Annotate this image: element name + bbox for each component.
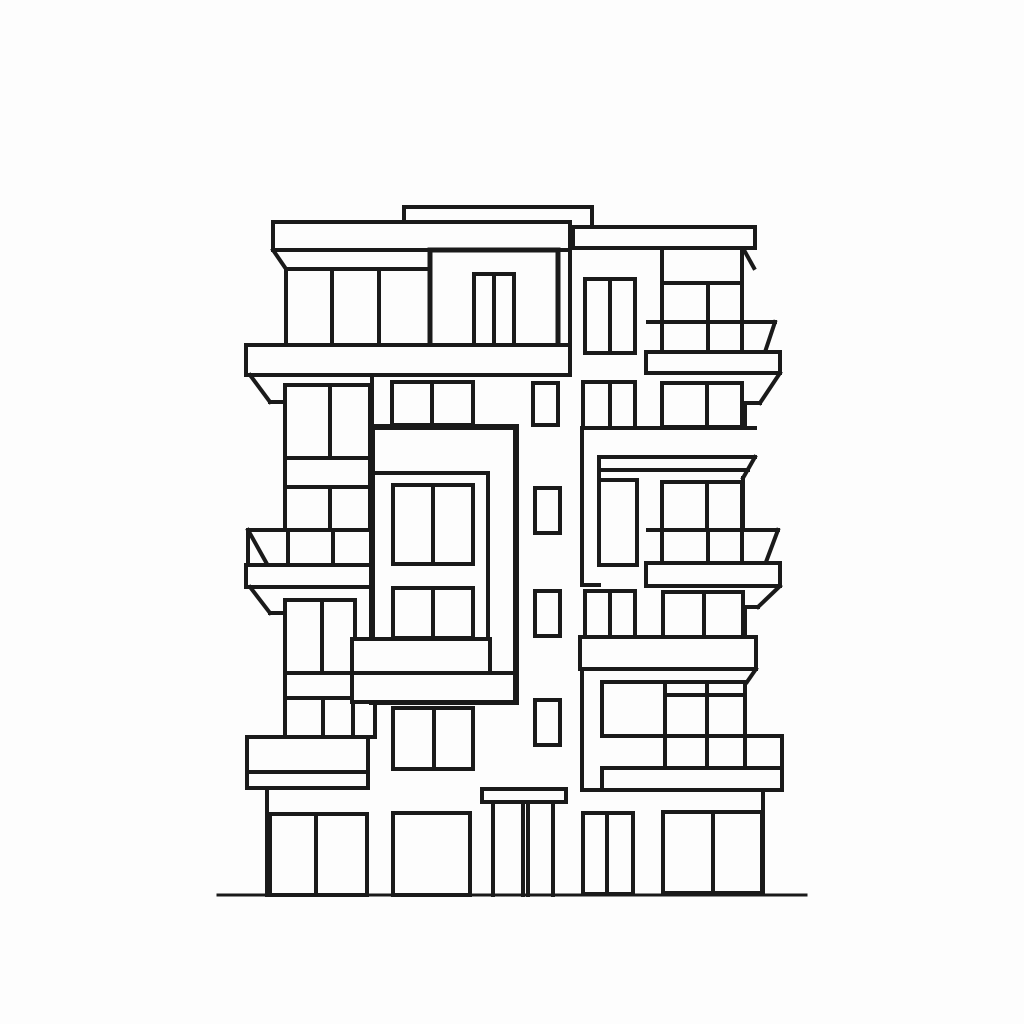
building-line-art — [0, 0, 1024, 1024]
floor4-right-window — [662, 383, 742, 427]
floor3-left-window — [285, 487, 370, 530]
canvas-background — [0, 0, 1024, 1024]
right-slab-band — [580, 637, 756, 669]
storefront-1 — [270, 814, 367, 895]
floor4-left-window — [285, 385, 370, 458]
balcony-l2-corner-diag — [248, 530, 267, 564]
balcony-l3-slab — [247, 772, 368, 788]
roof-left-eave-diag — [273, 250, 286, 269]
balcony-r1-corner-diag — [765, 322, 775, 352]
balcony-r2-corner-diag — [766, 530, 778, 562]
roof-slab-right — [573, 227, 755, 248]
balcony-l2-soffit-diag — [250, 587, 270, 613]
floor1-right-window-grid — [602, 682, 745, 736]
roof-slab-left — [273, 222, 570, 250]
left-slab-band-1 — [246, 345, 570, 375]
floor1-left-window — [285, 698, 353, 737]
roof-right-eave-diag — [744, 250, 754, 268]
storefront-2 — [393, 813, 470, 895]
balcony-l2-slab — [246, 565, 376, 587]
floor3-right-window — [662, 482, 742, 530]
balcony-r1-soffit-diag — [760, 373, 780, 403]
balcony-r1-slab — [646, 352, 780, 373]
balcony-l1-soffit-diag — [250, 375, 270, 402]
floor3-right-tall-window — [599, 480, 637, 565]
balcony-l3-rail — [247, 737, 368, 772]
core-window-4 — [535, 700, 560, 745]
floor2-left-sill-band — [285, 673, 355, 698]
floor4-left-sill-band — [285, 458, 370, 487]
balcony-r2-slab — [646, 563, 780, 586]
balcony-r2-soffit-diag — [758, 586, 780, 607]
balcony-r3-slab — [602, 768, 782, 790]
core-window-1 — [533, 383, 558, 425]
core-window-3 — [535, 591, 560, 636]
center-slab-band — [352, 639, 490, 673]
center-frame-bottom-bar — [352, 673, 515, 702]
core-window-2 — [535, 488, 560, 533]
floor1-left-side-pane — [353, 700, 375, 737]
right-header-band-diag — [743, 457, 755, 478]
